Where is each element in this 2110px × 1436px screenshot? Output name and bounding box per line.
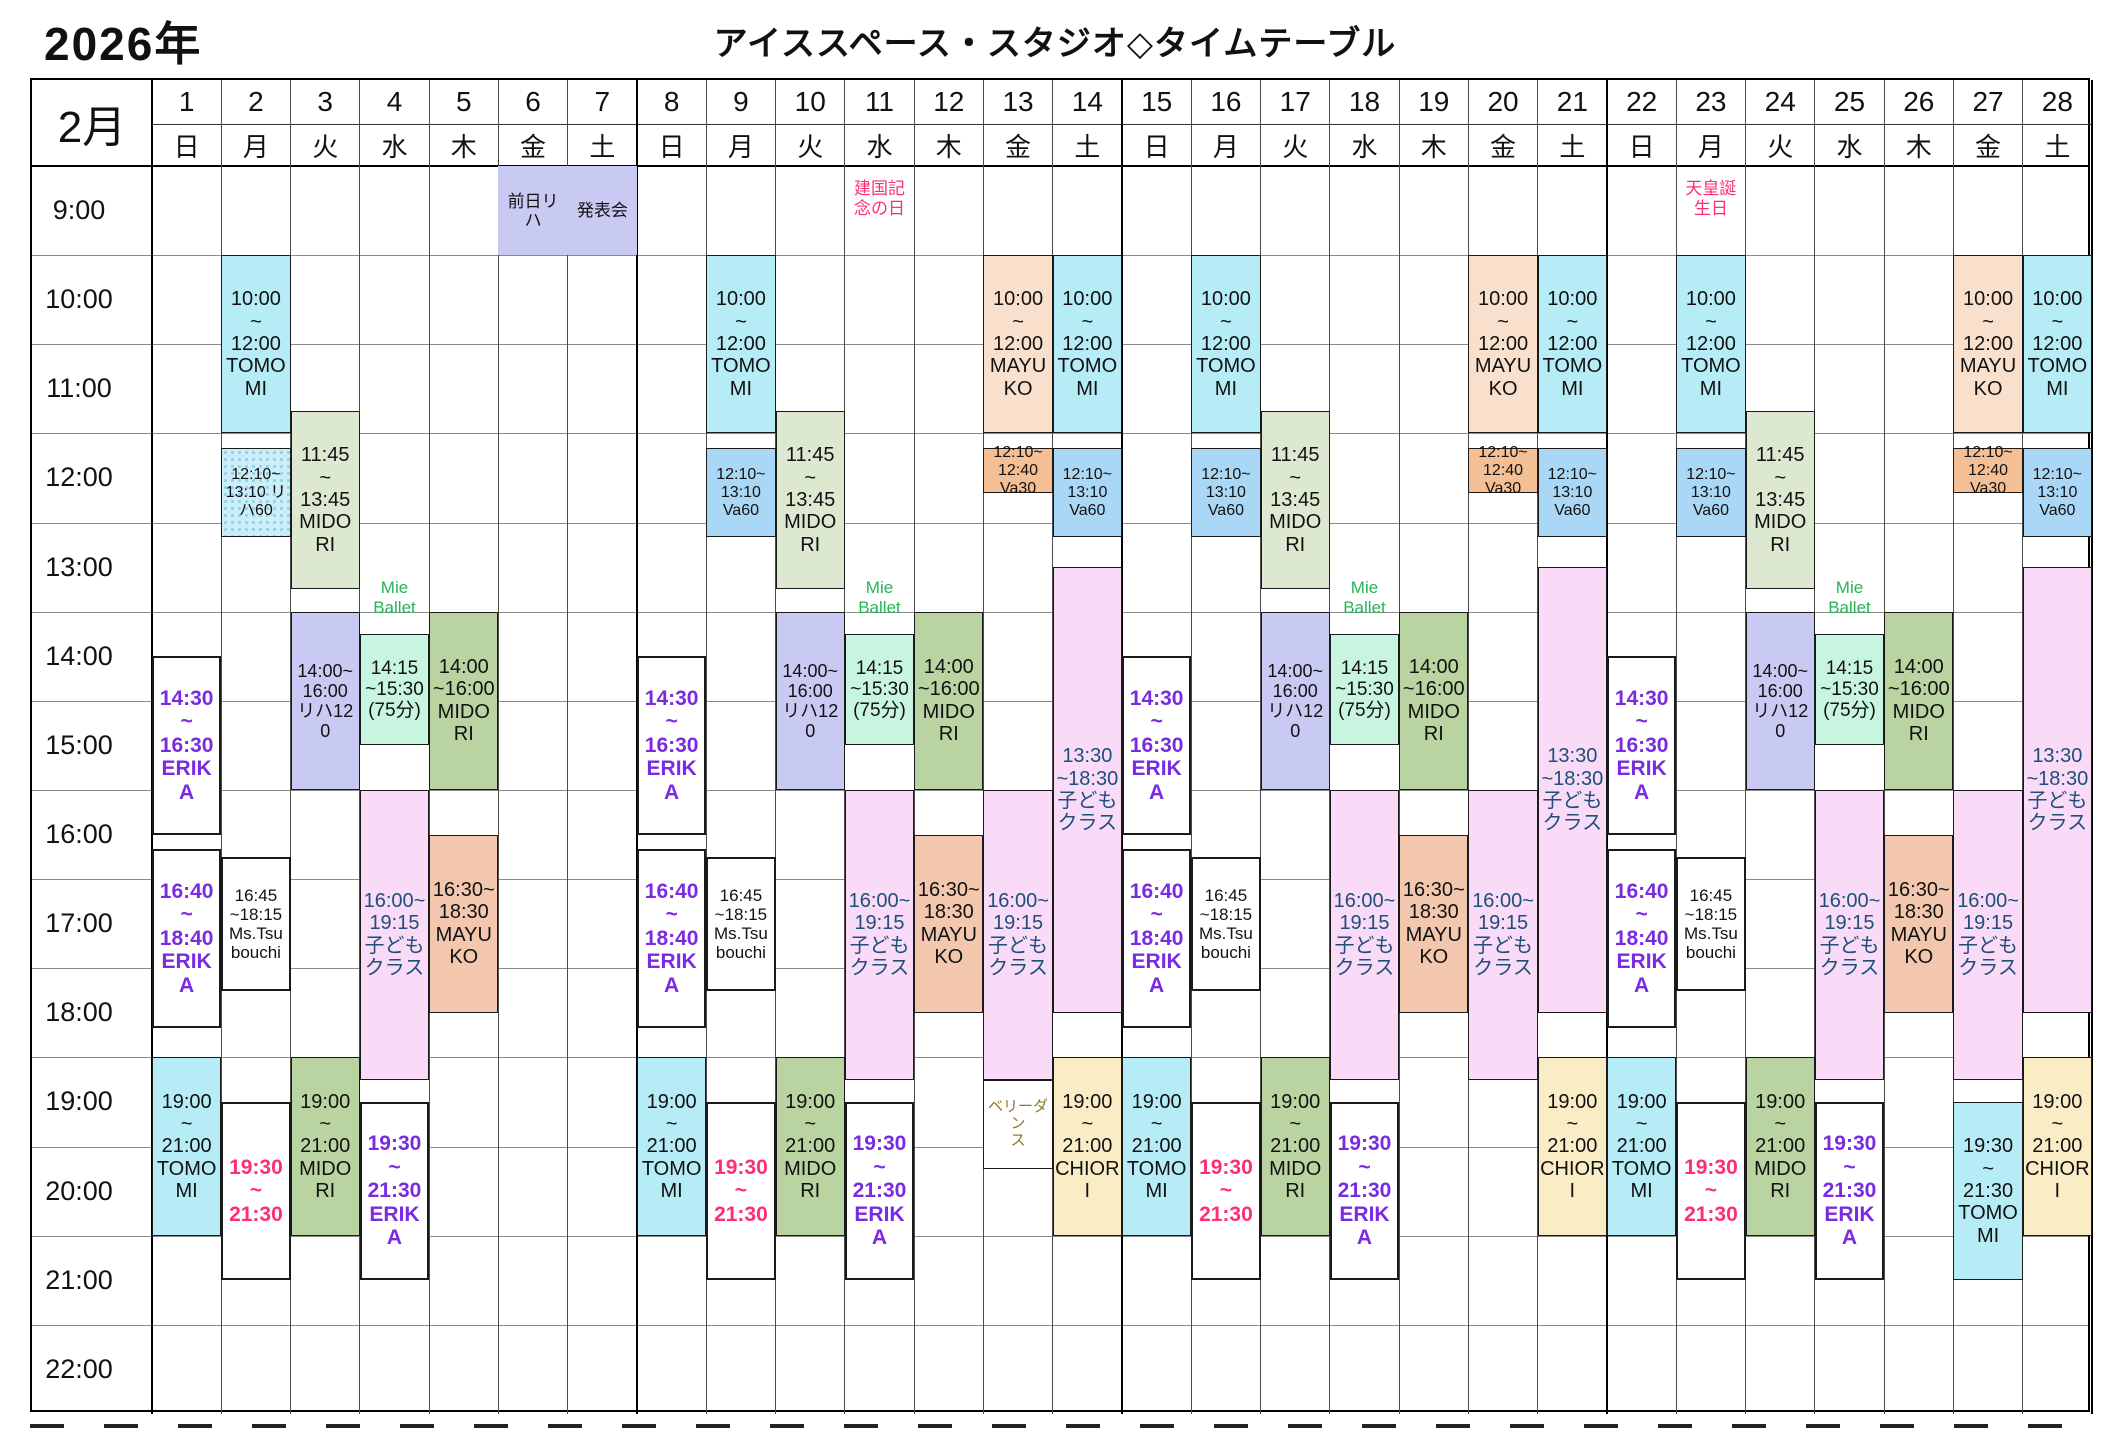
event-block: 19:30 ~ 21:30 ERIK A — [360, 1102, 429, 1280]
event-block: 12:10~ 13:10 Va60 — [1191, 448, 1260, 537]
time-label: 18:00 — [32, 968, 152, 1057]
next-table-cutoff-hint — [30, 1424, 2090, 1428]
weekday-label: 月 — [221, 124, 290, 166]
day-number: 14 — [1053, 80, 1122, 124]
timetable-page: 2026年 アイススペース・スタジオ◇タイムテーブル 2月1日2月3火4水5木6… — [0, 0, 2110, 1436]
event-block: 11:45 ~ 13:45 MIDO RI — [291, 411, 360, 589]
event-block: 19:00 ~ 21:00 CHIOR I — [1538, 1057, 1607, 1235]
day-number: 15 — [1122, 80, 1191, 124]
grid-line — [32, 165, 2088, 167]
event-block: 前日リ ハ — [498, 166, 567, 255]
weekday-label: 月 — [1676, 124, 1745, 166]
weekday-label: 水 — [360, 124, 429, 166]
event-block: 16:00~ 19:15 子ども クラス — [983, 790, 1052, 1080]
weekday-label: 月 — [706, 124, 775, 166]
event-block: 12:10~ 13:10 Va60 — [706, 448, 775, 537]
event-block: 14:00~ 16:00 リハ120 — [776, 612, 845, 790]
event-block: 12:10~ 13:10 リハ60 — [221, 448, 290, 537]
holiday-label: 天皇誕 生日 — [1677, 170, 1744, 228]
time-label: 16:00 — [32, 790, 152, 879]
event-block: 19:30 ~ 21:30 — [1191, 1102, 1260, 1280]
day-number: 1 — [152, 80, 221, 124]
event-block: 19:30 ~ 21:30 ERIK A — [1330, 1102, 1399, 1280]
event-block: 19:30 ~ 21:30 ERIK A — [1815, 1102, 1884, 1280]
day-number: 17 — [1261, 80, 1330, 124]
event-block: 19:00 ~ 21:00 TOMO MI — [152, 1057, 221, 1235]
event-block: 14:00 ~16:00 MIDO RI — [914, 612, 983, 790]
event-block: 10:00 ~ 12:00 MAYU KO — [1468, 255, 1537, 433]
day-number: 21 — [1538, 80, 1607, 124]
event-block: 14:30 ~ 16:30 ERIKA — [637, 656, 706, 834]
event-block: 12:10~ 12:40 Va30 — [1953, 448, 2022, 493]
time-label: 20:00 — [32, 1147, 152, 1236]
weekday-label: 金 — [498, 124, 567, 166]
holiday-label: 建国記 念の日 — [846, 170, 913, 228]
time-label: 13:00 — [32, 523, 152, 612]
weekday-label: 火 — [1746, 124, 1815, 166]
weekday-label: 金 — [1953, 124, 2022, 166]
event-block: 19:30 ~ 21:30 TOMO MI — [1953, 1102, 2022, 1280]
event-block: 14:30 ~ 16:30 ERIKA — [1122, 656, 1191, 834]
day-number: 23 — [1676, 80, 1745, 124]
event-block: 13:30 ~18:30 子どもクラス — [2023, 567, 2092, 1013]
event-block: 12:10~ 12:40 Va30 — [983, 448, 1052, 493]
event-block: 14:00 ~16:00 MIDO RI — [429, 612, 498, 790]
day-number: 9 — [706, 80, 775, 124]
day-number: 13 — [983, 80, 1052, 124]
day-number: 27 — [1953, 80, 2022, 124]
month-cell: 2月 — [32, 80, 152, 166]
event-block: 16:45 ~18:15 Ms.Tsu bouchi — [221, 857, 290, 991]
day-number: 20 — [1468, 80, 1537, 124]
event-block: 16:30~ 18:30 MAYU KO — [914, 835, 983, 1013]
event-block: 16:40 ~ 18:40 ERIKA — [637, 849, 706, 1027]
event-block: 19:00 ~ 21:00 MIDO RI — [291, 1057, 360, 1235]
timetable-grid: 2月1日2月3火4水5木6金7土8日9月10火11水12木13金14土15日16… — [30, 78, 2090, 1412]
weekday-label: 水 — [1330, 124, 1399, 166]
time-label: 14:00 — [32, 612, 152, 701]
weekday-label: 水 — [1815, 124, 1884, 166]
event-block: 発表会 — [568, 166, 637, 255]
event-block: 12:10~ 13:10 Va60 — [1538, 448, 1607, 537]
event-block: 12:10~ 12:40 Va30 — [1468, 448, 1537, 493]
event-block: 14:00 ~16:00 MIDO RI — [1399, 612, 1468, 790]
weekday-label: 月 — [1191, 124, 1260, 166]
event-block: 16:30~ 18:30 MAYU KO — [429, 835, 498, 1013]
day-number: 7 — [568, 80, 637, 124]
grid-line — [567, 80, 568, 1414]
day-number: 5 — [429, 80, 498, 124]
day-number: 18 — [1330, 80, 1399, 124]
event-block: 10:00 ~ 12:00 TOMO MI — [1676, 255, 1745, 433]
event-block: 16:30~ 18:30 MAYU KO — [1884, 835, 1953, 1013]
event-block: 16:45 ~18:15 Ms.Tsu bouchi — [706, 857, 775, 991]
event-block: 10:00 ~ 12:00 TOMO MI — [1053, 255, 1122, 433]
event-block: 14:15 ~15:30(75分) — [360, 634, 429, 745]
event-block: 14:15 ~15:30(75分) — [845, 634, 914, 745]
weekday-label: 木 — [1399, 124, 1468, 166]
event-block: 13:30 ~18:30 子どもクラス — [1053, 567, 1122, 1013]
weekday-label: 土 — [2023, 124, 2092, 166]
weekday-label: 木 — [429, 124, 498, 166]
day-number: 16 — [1191, 80, 1260, 124]
weekday-label: 木 — [914, 124, 983, 166]
event-block: 16:45 ~18:15 Ms.Tsu bouchi — [1191, 857, 1260, 991]
day-number: 12 — [914, 80, 983, 124]
grid-line — [32, 1325, 2088, 1326]
time-label: 15:00 — [32, 701, 152, 790]
event-block: 19:00 ~ 21:00 CHIOR I — [2023, 1057, 2092, 1235]
weekday-label: 金 — [983, 124, 1052, 166]
event-block: 10:00 ~ 12:00 TOMO MI — [221, 255, 290, 433]
day-number: 19 — [1399, 80, 1468, 124]
event-block: 11:45 ~ 13:45 MIDO RI — [1261, 411, 1330, 589]
day-number: 24 — [1746, 80, 1815, 124]
event-block: 14:00~ 16:00 リハ120 — [1746, 612, 1815, 790]
time-label: 12:00 — [32, 433, 152, 522]
event-block: 12:10~ 13:10 Va60 — [1053, 448, 1122, 537]
event-block: 16:00~ 19:15 子ども クラス — [845, 790, 914, 1080]
weekday-label: 水 — [845, 124, 914, 166]
day-number: 11 — [845, 80, 914, 124]
event-block: 16:00~ 19:15 子ども クラス — [1330, 790, 1399, 1080]
event-block: 11:45 ~ 13:45 MIDO RI — [776, 411, 845, 589]
event-block: 16:00~ 19:15 子ども クラス — [360, 790, 429, 1080]
time-label: 21:00 — [32, 1236, 152, 1325]
weekday-label: 日 — [1607, 124, 1676, 166]
event-block: 16:40 ~ 18:40 ERIKA — [1122, 849, 1191, 1027]
event-block: 16:00~ 19:15 子ども クラス — [1468, 790, 1537, 1080]
time-label: 22:00 — [32, 1325, 152, 1414]
day-number: 10 — [776, 80, 845, 124]
time-label: 19:00 — [32, 1057, 152, 1146]
event-block: 14:00~ 16:00 リハ120 — [291, 612, 360, 790]
weekday-label: 土 — [1053, 124, 1122, 166]
mie-ballet-label: Mie Ballet — [1816, 572, 1883, 624]
event-block: 10:00 ~ 12:00 TOMO MI — [1191, 255, 1260, 433]
time-label: 11:00 — [32, 344, 152, 433]
weekday-label: 土 — [568, 124, 637, 166]
event-block: 16:45 ~18:15 Ms.Tsu bouchi — [1676, 857, 1745, 991]
event-block: 19:00 ~ 21:00 MIDO RI — [776, 1057, 845, 1235]
time-label: 9:00 — [32, 166, 152, 255]
weekday-label: 金 — [1468, 124, 1537, 166]
event-block: 19:00 ~ 21:00 MIDO RI — [1746, 1057, 1815, 1235]
event-block: 10:00 ~ 12:00 TOMO MI — [1538, 255, 1607, 433]
event-block: 14:15 ~15:30(75分) — [1330, 634, 1399, 745]
day-number: 25 — [1815, 80, 1884, 124]
event-block: 12:10~ 13:10 Va60 — [1676, 448, 1745, 537]
weekday-label: 日 — [637, 124, 706, 166]
weekday-label: 日 — [1122, 124, 1191, 166]
event-block: 16:40 ~ 18:40 ERIKA — [1607, 849, 1676, 1027]
weekday-label: 火 — [776, 124, 845, 166]
day-number: 4 — [360, 80, 429, 124]
mie-ballet-label: Mie Ballet — [361, 572, 428, 624]
event-block: 19:30 ~ 21:30 — [706, 1102, 775, 1280]
day-number: 2 — [221, 80, 290, 124]
event-block: 12:10~ 13:10 Va60 — [2023, 448, 2092, 537]
day-number: 3 — [291, 80, 360, 124]
event-block: 14:00~ 16:00 リハ120 — [1261, 612, 1330, 790]
event-block: 19:00 ~ 21:00 TOMO MI — [637, 1057, 706, 1235]
mie-ballet-label: Mie Ballet — [846, 572, 913, 624]
weekday-label: 火 — [1261, 124, 1330, 166]
day-number: 26 — [1884, 80, 1953, 124]
weekday-label: 木 — [1884, 124, 1953, 166]
event-block: 13:30 ~18:30 子どもクラス — [1538, 567, 1607, 1013]
day-number: 28 — [2023, 80, 2092, 124]
event-block: 19:00 ~ 21:00 MIDO RI — [1261, 1057, 1330, 1235]
day-number: 22 — [1607, 80, 1676, 124]
event-block: 14:00 ~16:00 MIDO RI — [1884, 612, 1953, 790]
event-block: 19:30 ~ 21:30 ERIK A — [845, 1102, 914, 1280]
event-block: 14:30 ~ 16:30 ERIKA — [1607, 656, 1676, 834]
event-block: 19:30 ~ 21:30 — [1676, 1102, 1745, 1280]
event-block: 16:00~ 19:15 子ども クラス — [1953, 790, 2022, 1080]
event-block: 19:00 ~ 21:00 CHIOR I — [1053, 1057, 1122, 1235]
event-block: ベリーダン ス — [983, 1080, 1052, 1169]
event-block: 14:15 ~15:30(75分) — [1815, 634, 1884, 745]
event-block: 19:00 ~ 21:00 TOMO MI — [1122, 1057, 1191, 1235]
event-block: 19:00 ~ 21:00 TOMO MI — [1607, 1057, 1676, 1235]
event-block: 10:00 ~ 12:00 TOMO MI — [2023, 255, 2092, 433]
event-block: 16:40 ~ 18:40 ERIKA — [152, 849, 221, 1027]
event-block: 16:00~ 19:15 子ども クラス — [1815, 790, 1884, 1080]
grid-line — [32, 1236, 2088, 1237]
event-block: 10:00 ~ 12:00 TOMO MI — [706, 255, 775, 433]
event-block: 10:00 ~ 12:00 MAYU KO — [1953, 255, 2022, 433]
weekday-label: 土 — [1538, 124, 1607, 166]
time-label: 10:00 — [32, 255, 152, 344]
mie-ballet-label: Mie Ballet — [1331, 572, 1398, 624]
time-label: 17:00 — [32, 879, 152, 968]
event-block: 19:30 ~ 21:30 — [221, 1102, 290, 1280]
event-block: 14:30 ~ 16:30 ERIKA — [152, 656, 221, 834]
day-number: 8 — [637, 80, 706, 124]
day-number: 6 — [498, 80, 567, 124]
event-block: 16:30~ 18:30 MAYU KO — [1399, 835, 1468, 1013]
weekday-label: 日 — [152, 124, 221, 166]
weekday-label: 火 — [291, 124, 360, 166]
event-block: 11:45 ~ 13:45 MIDO RI — [1746, 411, 1815, 589]
page-title: アイススペース・スタジオ◇タイムテーブル — [0, 16, 2110, 65]
event-block: 10:00 ~ 12:00 MAYU KO — [983, 255, 1052, 433]
